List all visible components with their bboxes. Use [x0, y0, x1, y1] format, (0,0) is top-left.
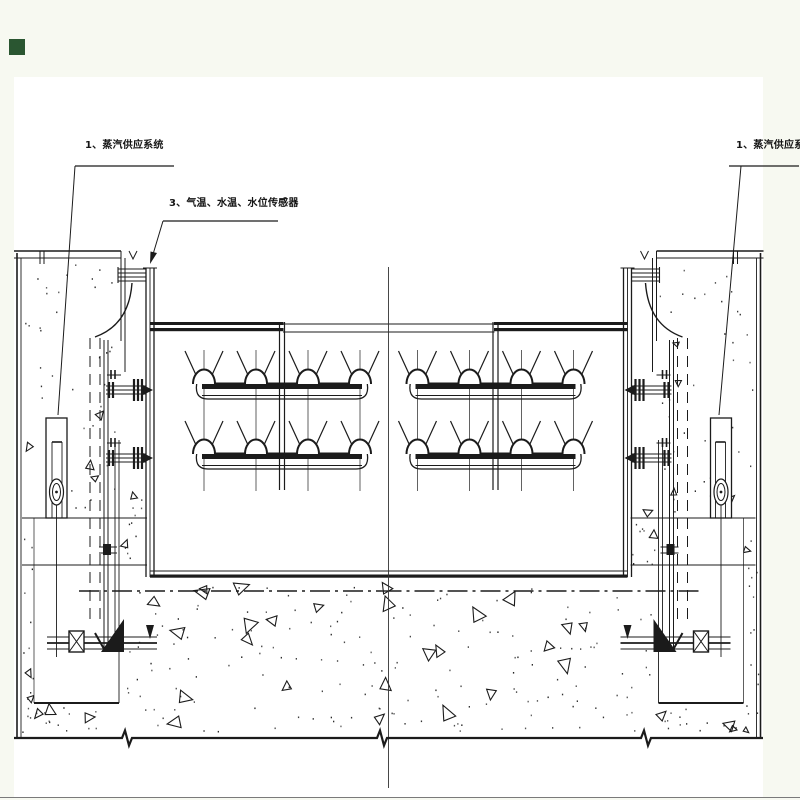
cad-section-drawing	[0, 0, 800, 800]
label-sensors: 3、气温、水温、水位传感器	[169, 194, 299, 209]
green-marker-square	[9, 39, 25, 55]
drawing-sheet: 1、蒸汽供应系统 3、气温、水温、水位传感器 1、蒸汽供应系统	[0, 0, 800, 800]
label-steam-supply-right: 1、蒸汽供应系统	[736, 136, 800, 151]
label-steam-supply-left: 1、蒸汽供应系统	[85, 136, 164, 151]
